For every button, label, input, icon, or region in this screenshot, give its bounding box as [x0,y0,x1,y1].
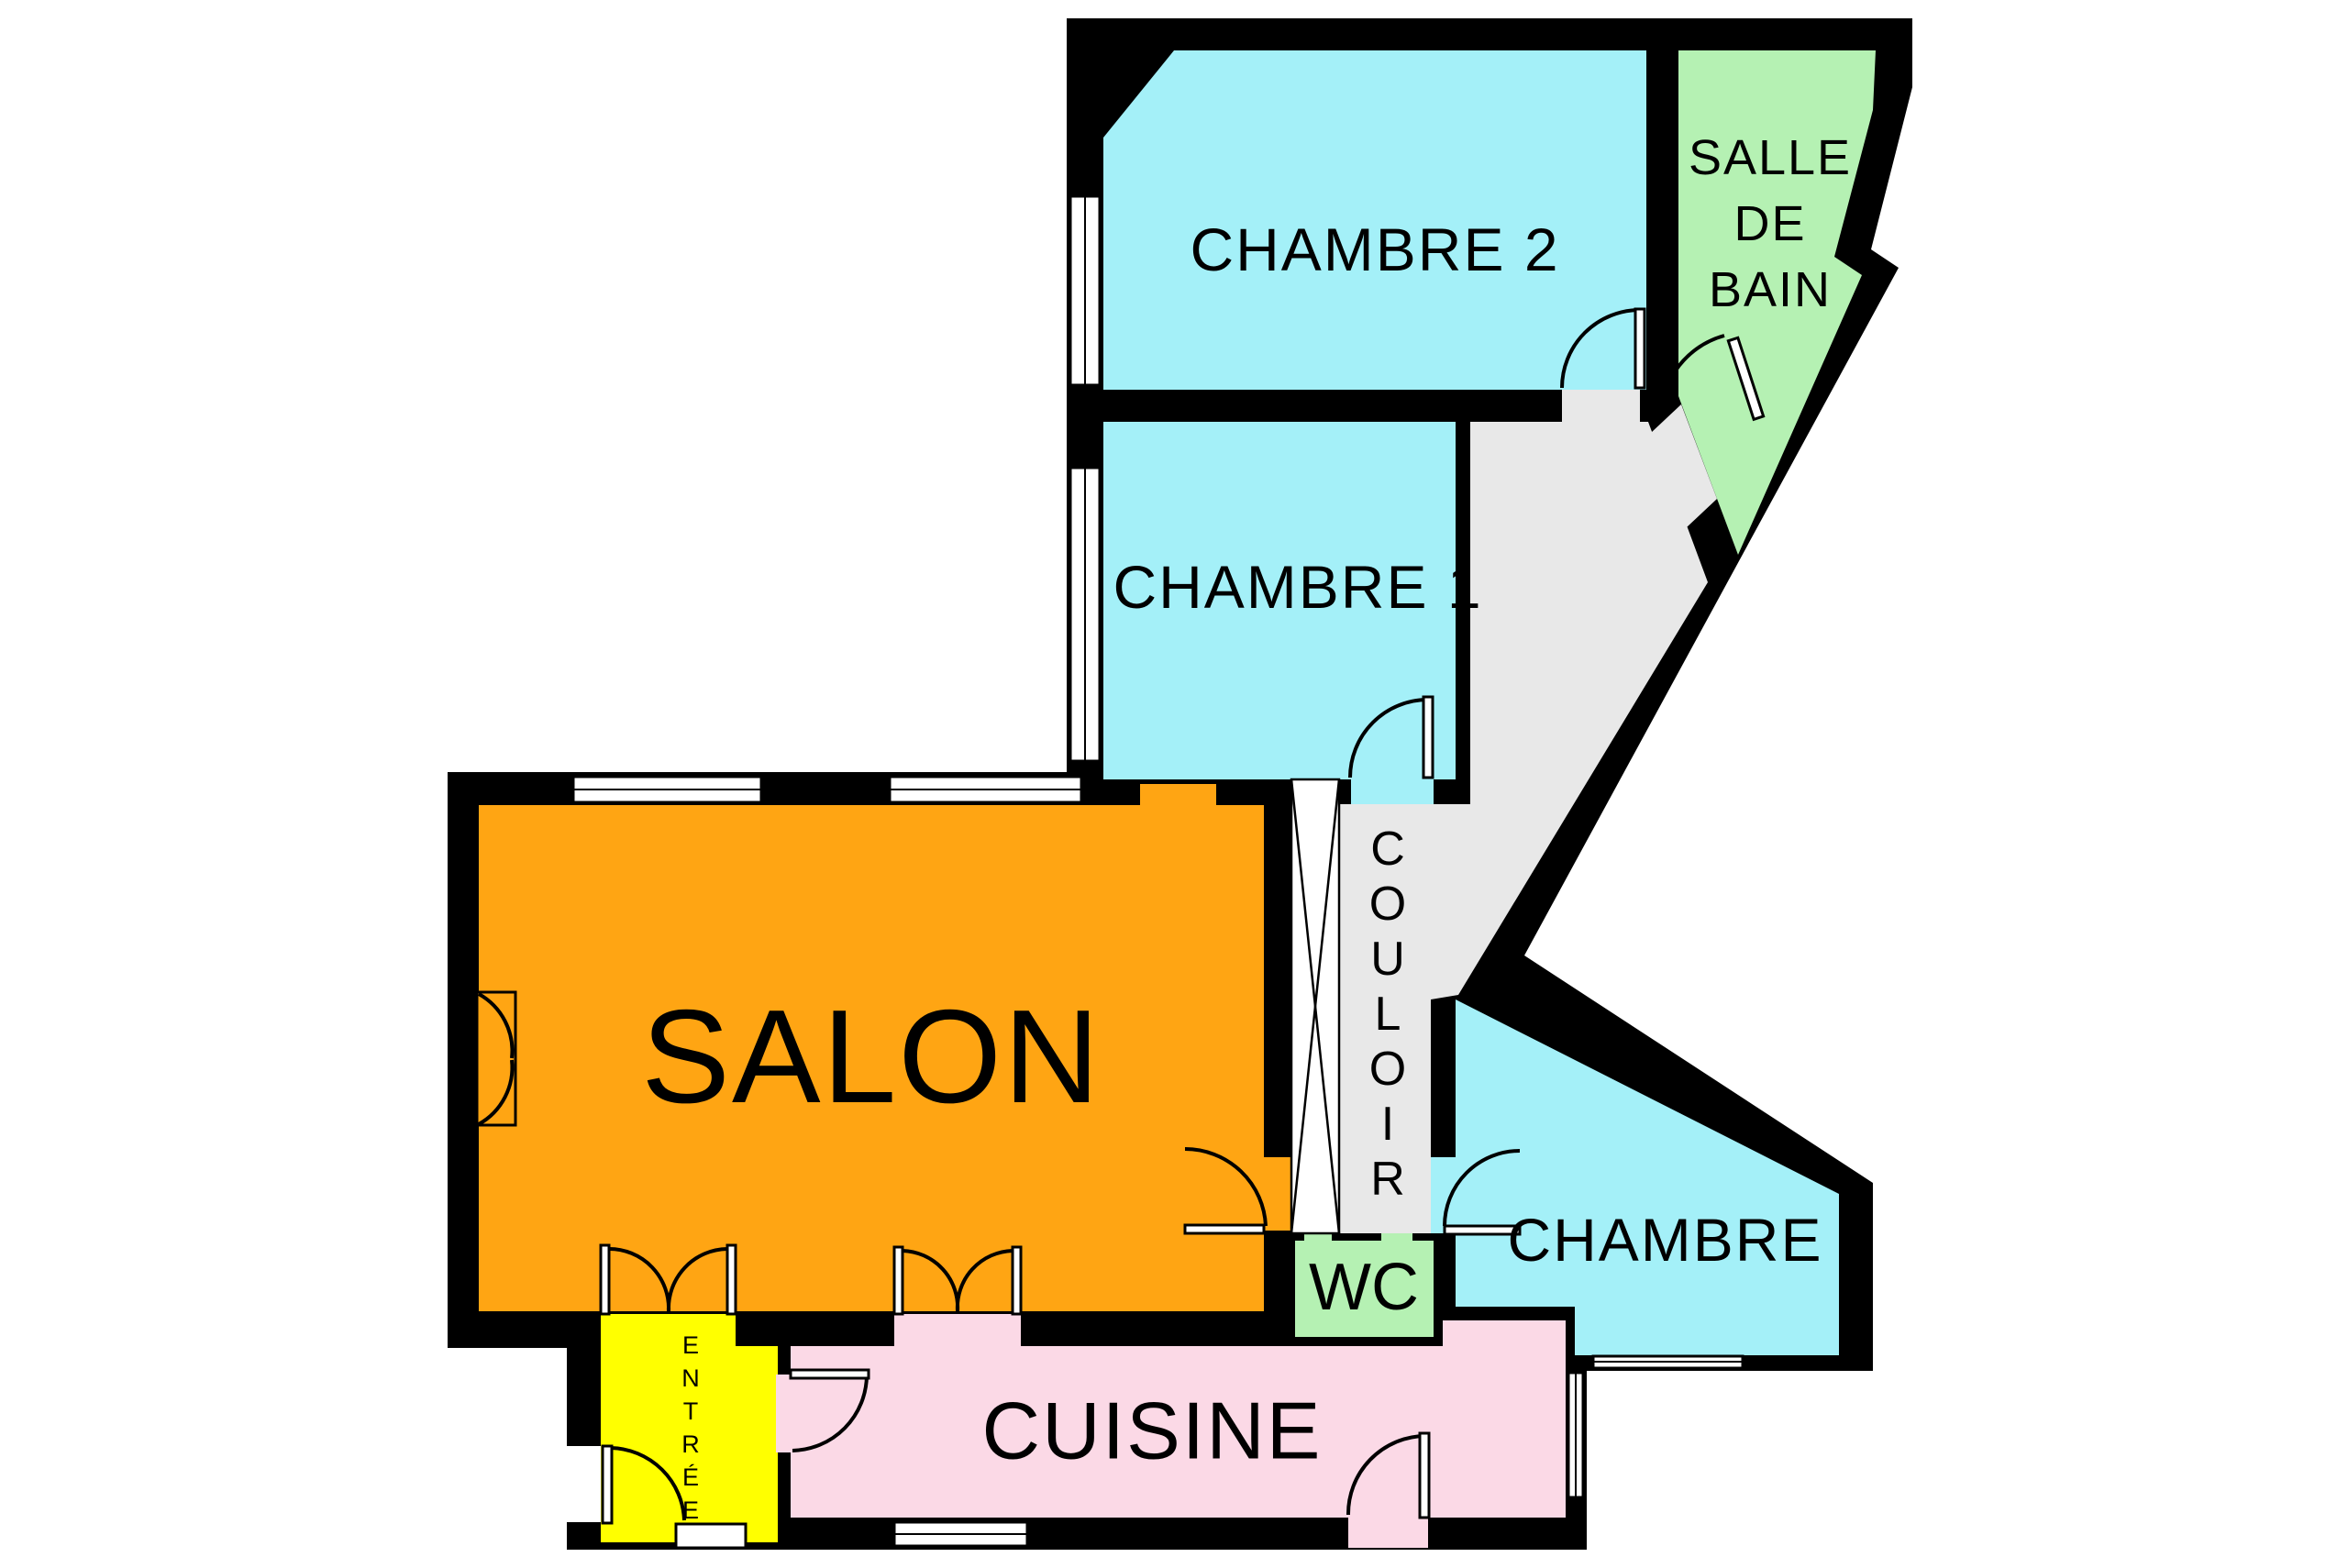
window-chambre1-left [1070,468,1100,761]
couloir-letter: L [1375,988,1401,1041]
wc-door-gap-left [1304,1233,1332,1242]
label-chambre-1: CHAMBRE 1 [1113,553,1482,621]
room-chambre-1-doorway [1351,779,1434,805]
entree-letter: T [683,1397,699,1425]
entree-letter: R [681,1430,700,1458]
label-bain: BAIN [1709,262,1832,317]
window-cuisine-right [1568,1373,1583,1497]
window-salon-top-right [890,777,1081,802]
floorplan-page: CHAMBRE 2 SALLE DE BAIN CHAMBRE 1 SALON … [0,0,2348,1568]
entree-letter: E [682,1331,699,1359]
couloir-letter: I [1381,1098,1394,1151]
entree-letter: N [681,1364,700,1392]
couloir-letter: C [1370,823,1405,876]
closet-x [1291,779,1339,1233]
label-salle: SALLE [1689,130,1852,185]
couloir-letter: U [1370,933,1405,986]
label-cuisine: CUISINE [982,1386,1323,1476]
salon-couloir-door-gap [1264,1157,1291,1231]
label-chambre-2: CHAMBRE 2 [1190,215,1559,283]
window-cuisine-bottom [894,1522,1027,1546]
floorplan-svg: CHAMBRE 2 SALLE DE BAIN CHAMBRE 1 SALON … [0,0,2348,1568]
window-chambre3-bottom [1593,1356,1743,1368]
salon-wall-niche [1140,784,1216,805]
chambre-2-door-gap [1562,390,1640,424]
entree-threshold [676,1524,746,1548]
entree-opening [601,1314,736,1347]
label-salon: SALON [641,982,1102,1131]
wc-door-gap-right [1381,1233,1412,1242]
entree-letter: É [682,1463,699,1491]
label-wc: WC [1309,1251,1419,1324]
window-chambre2-left [1070,196,1100,385]
cuisine-door-gap-bottom [1348,1518,1428,1548]
entree-front-door-gap [567,1446,601,1522]
entree-letter: E [682,1496,699,1524]
couloir-letter: O [1369,878,1406,931]
french-window-salon [477,992,515,1125]
label-chambre-3: CHAMBRE 3 [1507,1206,1877,1274]
couloir-letter: O [1369,1043,1406,1096]
label-de: DE [1733,196,1806,251]
cuisine-door-gap-entree [776,1375,791,1452]
window-salon-top-left [573,777,761,802]
cuisine-opening-from-salon [894,1314,1021,1347]
couloir-letter: R [1370,1153,1405,1206]
